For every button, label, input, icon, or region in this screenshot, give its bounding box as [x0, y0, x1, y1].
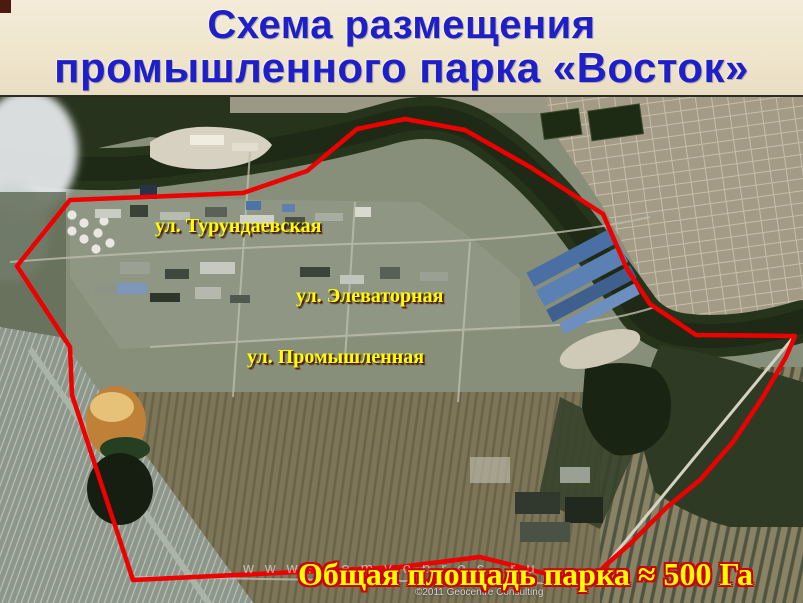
area-caption: Общая площадь парка ≈ 500 Га: [298, 558, 753, 590]
dock-building: [232, 143, 258, 151]
street-label-elevatornaya: ул. Элеваторная: [296, 286, 443, 306]
dock-building: [190, 135, 224, 145]
street-label-promyshlennaya: ул. Промышленная: [247, 347, 424, 367]
title-block: Схема размещения промышленного парка «Во…: [0, 0, 803, 95]
satellite-map: ул. Турундаевская ул. Элеваторная ул. Пр…: [0, 95, 803, 603]
street-label-turundaevskaya: ул. Турундаевская: [155, 216, 321, 236]
orange-pond-light: [90, 392, 134, 422]
slide-root: Схема размещения промышленного парка «Во…: [0, 0, 803, 603]
slide-title-line1: Схема размещения: [0, 5, 803, 45]
slide-title-line2: промышленного парка «Восток»: [0, 47, 803, 89]
